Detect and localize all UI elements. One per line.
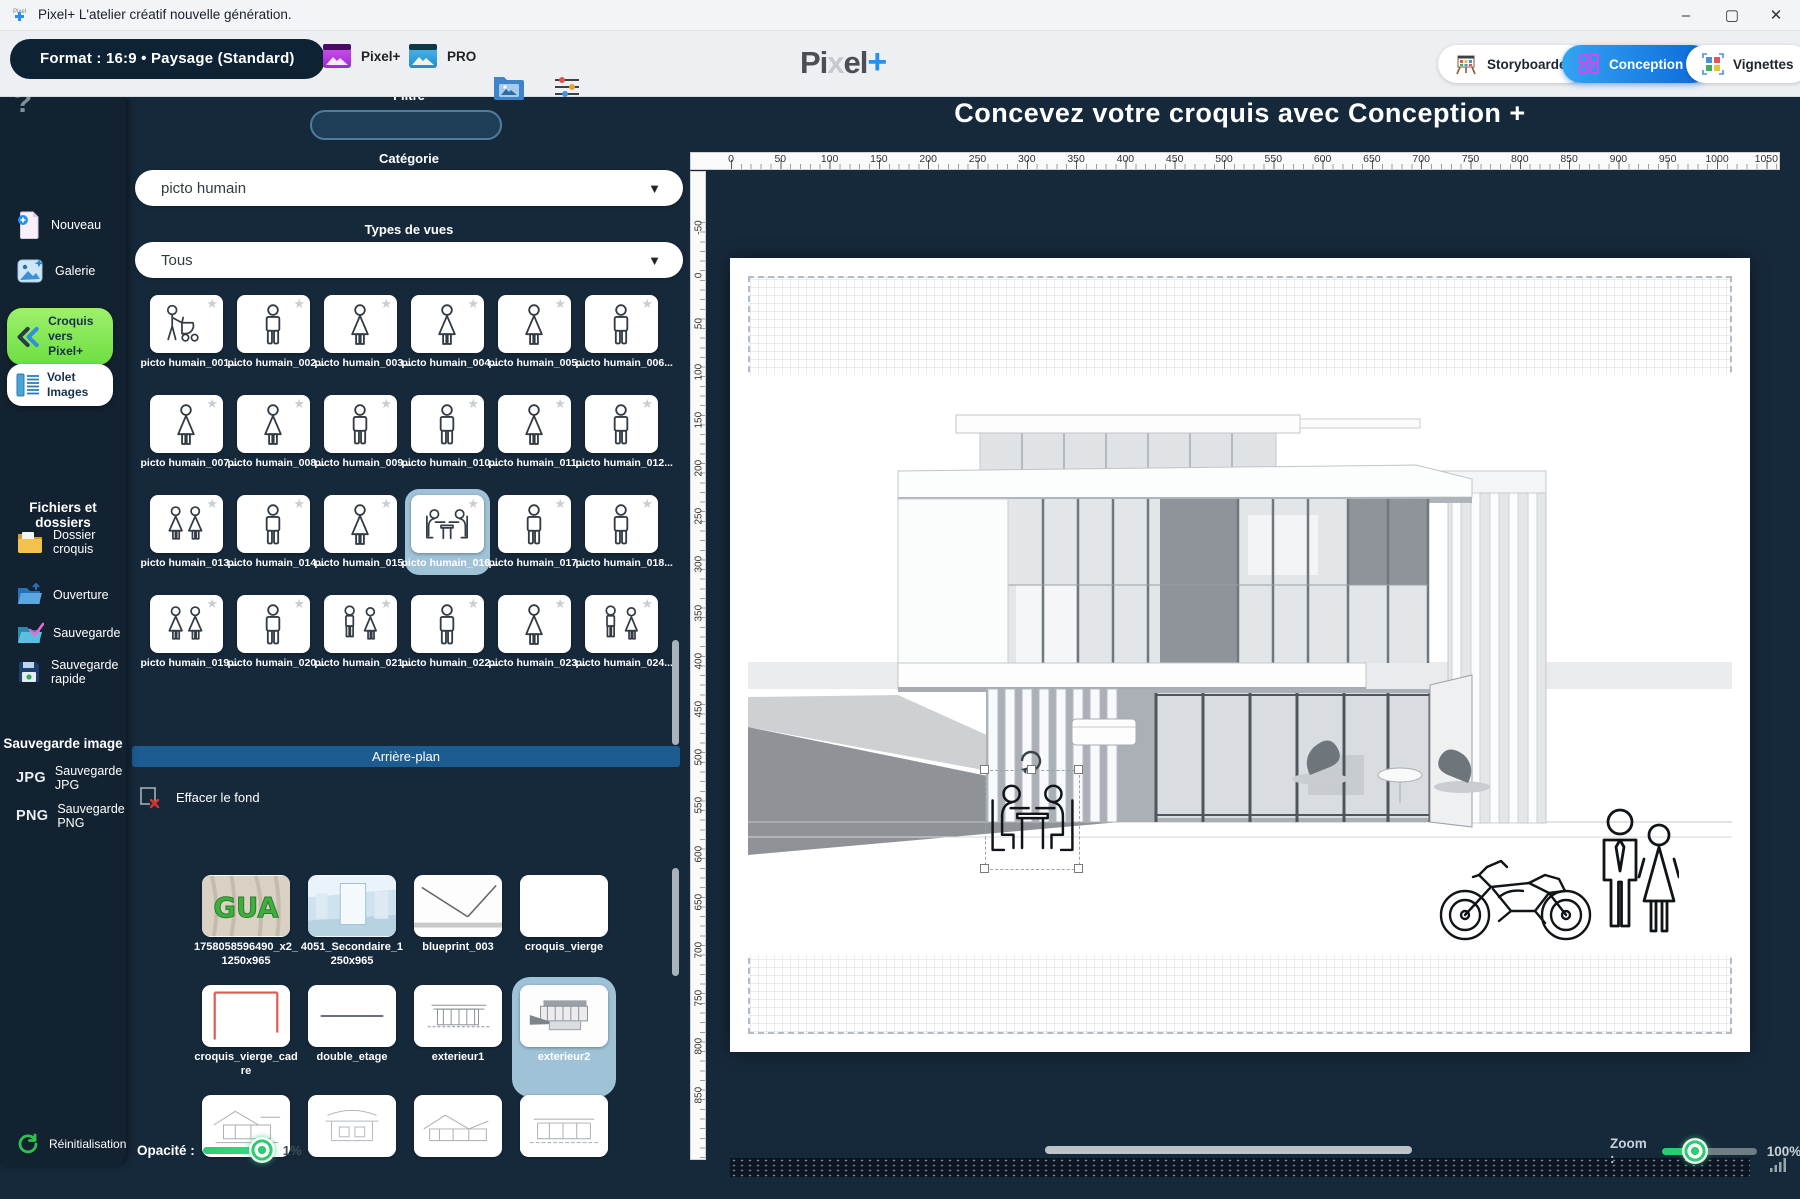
ruler-tick-label: 1050 bbox=[1755, 153, 1778, 165]
picto-tile[interactable]: ★ picto humain_022... bbox=[411, 595, 484, 669]
ruler-tick-label: 250 bbox=[969, 153, 987, 165]
background-thumb-image bbox=[308, 1095, 396, 1157]
picto-tile[interactable]: ★ picto humain_019... bbox=[150, 595, 223, 669]
picto-label: picto humain_024... bbox=[576, 657, 668, 669]
background-tile[interactable]: croquis_vierge_cadre bbox=[202, 985, 290, 1089]
left-sidebar: ? Nouveau Galerie Croquisvers Pixel+ bbox=[0, 92, 126, 1166]
effacer-le-fond-checkbox[interactable]: Effacer le fond bbox=[138, 785, 260, 809]
picto-label: picto humain_016... bbox=[402, 557, 494, 569]
picto-icon bbox=[591, 502, 651, 548]
types-de-vues-dropdown[interactable]: Tous ▼ bbox=[135, 242, 683, 278]
picto-tile[interactable]: ★ picto humain_017... bbox=[498, 495, 571, 569]
volet-images-button[interactable]: VoletImages bbox=[7, 364, 113, 406]
picto-icon bbox=[330, 302, 390, 348]
ruler-tick-label: 100 bbox=[694, 364, 705, 380]
sidebar-item-sauvegarde-rapide[interactable]: Sauvegarde rapide bbox=[16, 658, 122, 686]
picto-icon bbox=[591, 302, 651, 348]
picto-label: picto humain_013... bbox=[141, 557, 233, 569]
zoom-label: Zoom : bbox=[1610, 1136, 1652, 1166]
ruler-tick-label: 850 bbox=[1560, 153, 1578, 165]
picto-label: picto humain_010... bbox=[402, 457, 494, 469]
background-thumb-image bbox=[414, 985, 502, 1047]
double-chevron-left-icon bbox=[15, 325, 42, 349]
background-tile[interactable]: croquis_vierge bbox=[520, 875, 608, 979]
background-thumb-image bbox=[520, 1095, 608, 1157]
picto-tile[interactable]: ★ picto humain_006... bbox=[585, 295, 658, 369]
background-thumb-image bbox=[308, 875, 396, 937]
volet-label: VoletImages bbox=[47, 370, 88, 400]
picto-icon bbox=[591, 402, 651, 448]
ruler-tick-label: 950 bbox=[1659, 153, 1677, 165]
ruler-tick-label: 350 bbox=[1067, 153, 1085, 165]
background-tile[interactable] bbox=[520, 1095, 608, 1199]
picto-label: picto humain_009... bbox=[315, 457, 407, 469]
galerie-label: Galerie bbox=[55, 264, 95, 278]
picto-label: picto humain_012... bbox=[576, 457, 668, 469]
picto-tile[interactable]: ★ picto humain_001... bbox=[150, 295, 223, 369]
picto-icon bbox=[417, 402, 477, 448]
title-bar: Pixel Pixel+ L'atelier créatif nouvelle … bbox=[0, 0, 1800, 31]
ruler-tick-label: 450 bbox=[1166, 153, 1184, 165]
background-label: exterieur2 bbox=[511, 1051, 617, 1065]
picto-icon bbox=[504, 502, 564, 548]
maximize-button[interactable]: ▢ bbox=[1711, 2, 1753, 29]
ruler-tick-label: 100 bbox=[821, 153, 839, 165]
picto-icon bbox=[156, 302, 216, 348]
app-logo: Pixel+ bbox=[800, 43, 886, 82]
picto-icon bbox=[330, 602, 390, 648]
ouverture-label: Ouverture bbox=[53, 588, 109, 602]
erase-background-icon bbox=[138, 785, 162, 809]
ruler-tick-label: 750 bbox=[694, 991, 705, 1007]
gallery-icon bbox=[16, 256, 46, 286]
picto-tile[interactable]: ★ picto humain_012... bbox=[585, 395, 658, 469]
pro-button[interactable]: PRO bbox=[408, 43, 476, 69]
picto-tile[interactable]: ★ picto humain_003... bbox=[324, 295, 397, 369]
ruler-tick-label: 500 bbox=[1215, 153, 1233, 165]
opacity-label: Opacité : bbox=[137, 1143, 195, 1158]
selection-handle[interactable] bbox=[980, 864, 989, 873]
easel-icon bbox=[1454, 52, 1478, 76]
picto-list-scrollbar[interactable] bbox=[672, 640, 679, 745]
picto-label: picto humain_017... bbox=[489, 557, 581, 569]
picto-tile[interactable]: ★ picto humain_018... bbox=[585, 495, 658, 569]
picto-label: picto humain_014... bbox=[228, 557, 320, 569]
canvas-bottom-strip bbox=[730, 1158, 1750, 1177]
floppy-disk-icon bbox=[16, 659, 42, 685]
selection-handle[interactable] bbox=[980, 765, 989, 774]
croquis-vers-pixel-button[interactable]: Croquisvers Pixel+ bbox=[7, 308, 113, 365]
picto-tile[interactable]: ★ picto humain_014... bbox=[237, 495, 310, 569]
categorie-label: Catégorie bbox=[135, 151, 683, 166]
picto-icon bbox=[591, 602, 651, 648]
pixel-plus-button[interactable]: Pixel+ bbox=[322, 43, 400, 69]
ruler-tick-label: 200 bbox=[694, 461, 705, 477]
horizontal-ruler: 0501001502002503003504004505005506006507… bbox=[690, 152, 1780, 170]
png-icon: PNG bbox=[16, 808, 48, 824]
ruler-tick-label: 800 bbox=[1511, 153, 1529, 165]
picto-tile[interactable]: ★ picto humain_008... bbox=[237, 395, 310, 469]
sliders-icon[interactable] bbox=[552, 72, 582, 102]
vertical-ruler: -500501001502002503003504004505005506006… bbox=[690, 171, 706, 1160]
background-thumb-image bbox=[414, 1095, 502, 1157]
ruler-tick-label: 200 bbox=[919, 153, 937, 165]
picto-label: picto humain_003... bbox=[315, 357, 407, 369]
picto-icon bbox=[504, 602, 564, 648]
picto-icon bbox=[330, 402, 390, 448]
folder-save-icon bbox=[16, 620, 44, 646]
opacity-control: Opacité : 1% bbox=[137, 1143, 302, 1158]
categorie-dropdown[interactable]: picto humain ▼ bbox=[135, 170, 683, 206]
picto-label: picto humain_023... bbox=[489, 657, 581, 669]
canvas-horizontal-scrollbar[interactable] bbox=[1045, 1146, 1412, 1154]
zoom-slider[interactable] bbox=[1662, 1148, 1756, 1155]
picto-icon bbox=[417, 302, 477, 348]
picto-icon bbox=[243, 402, 303, 448]
sidebar-item-sauvegarde[interactable]: Sauvegarde bbox=[16, 620, 122, 646]
folder-open-icon bbox=[16, 582, 44, 608]
picto-icon bbox=[330, 502, 390, 548]
picto-label: picto humain_004... bbox=[402, 357, 494, 369]
picto-tile[interactable]: ★ picto humain_024... bbox=[585, 595, 658, 669]
sauvegarde-rapide-label: Sauvegarde rapide bbox=[51, 658, 113, 686]
background-tile[interactable]: exterieur2 bbox=[520, 985, 608, 1089]
picto-tile[interactable]: ★ picto humain_015... bbox=[324, 495, 397, 569]
chevron-down-icon: ▼ bbox=[648, 253, 661, 268]
background-thumb-image bbox=[202, 985, 290, 1047]
placed-picto-couple[interactable] bbox=[1593, 807, 1679, 945]
background-tile[interactable]: 1758058596490_x2_1250x965 bbox=[202, 875, 290, 979]
picto-icon bbox=[156, 602, 216, 648]
sidebar-item-nouveau[interactable]: Nouveau bbox=[16, 210, 122, 240]
sidebar-item-sauvegarde-png[interactable]: PNG Sauvegarde PNG bbox=[16, 802, 122, 830]
sidebar-item-sauvegarde-jpg[interactable]: JPG Sauvegarde JPG bbox=[16, 764, 122, 792]
picto-icon bbox=[156, 402, 216, 448]
background-label: croquis_vierge_cadre bbox=[193, 1051, 299, 1079]
zoom-slider-thumb[interactable] bbox=[1682, 1138, 1708, 1164]
conception-label: Conception + bbox=[1609, 57, 1695, 72]
new-document-icon bbox=[16, 210, 42, 240]
picto-icon bbox=[243, 302, 303, 348]
ruler-tick-label: 700 bbox=[694, 943, 705, 959]
opacity-slider-thumb[interactable] bbox=[249, 1137, 275, 1163]
background-tile[interactable] bbox=[308, 1095, 396, 1199]
reinitialisation-button[interactable]: Réinitialisation bbox=[16, 1132, 122, 1156]
sauvegarde-jpg-label: Sauvegarde JPG bbox=[55, 764, 117, 792]
background-thumb-image bbox=[414, 875, 502, 937]
background-tile[interactable] bbox=[414, 1095, 502, 1199]
window-title: Pixel+ L'atelier créatif nouvelle généra… bbox=[38, 7, 292, 22]
picto-icon bbox=[243, 602, 303, 648]
picto-icon bbox=[504, 302, 564, 348]
picto-tile[interactable]: ★ picto humain_007... bbox=[150, 395, 223, 469]
ruler-tick-label: 300 bbox=[1018, 153, 1036, 165]
background-thumb-image bbox=[520, 875, 608, 937]
picto-label: picto humain_019... bbox=[141, 657, 233, 669]
storyboarder-label: Storyboarder bbox=[1487, 57, 1572, 72]
pixel-plus-label: Pixel+ bbox=[361, 49, 400, 64]
refresh-icon bbox=[16, 1132, 40, 1156]
ruler-tick-label: 450 bbox=[694, 702, 705, 718]
ruler-tick-label: 650 bbox=[1363, 153, 1381, 165]
ruler-tick-label: 700 bbox=[1412, 153, 1430, 165]
picto-icon bbox=[243, 502, 303, 548]
panel-list-icon bbox=[15, 372, 41, 398]
image-save-heading: Sauvegarde image bbox=[0, 736, 126, 751]
ruler-tick-label: 800 bbox=[694, 1039, 705, 1055]
picto-label: picto humain_015... bbox=[315, 557, 407, 569]
format-pill[interactable]: Format : 16:9 • Paysage (Standard) bbox=[10, 39, 325, 79]
picto-label: picto humain_022... bbox=[402, 657, 494, 669]
ruler-tick-label: 400 bbox=[1117, 153, 1135, 165]
ruler-tick-label: 600 bbox=[694, 846, 705, 862]
picto-tile[interactable]: ★ picto humain_021... bbox=[324, 595, 397, 669]
ruler-tick-label: 400 bbox=[694, 653, 705, 669]
picto-tile[interactable]: ★ picto humain_011... bbox=[498, 395, 571, 469]
selection-handle[interactable] bbox=[1074, 765, 1083, 774]
vignettes-button[interactable]: Vignettes bbox=[1686, 45, 1800, 83]
ruler-tick-label: 50 bbox=[774, 153, 786, 165]
ruler-tick-label: 150 bbox=[870, 153, 888, 165]
sidebar-item-galerie[interactable]: Galerie bbox=[16, 256, 122, 286]
picto-label: picto humain_006... bbox=[576, 357, 668, 369]
picto-tile[interactable]: ★ picto humain_005... bbox=[498, 295, 571, 369]
reinitialisation-label: Réinitialisation bbox=[49, 1137, 126, 1151]
ruler-tick-label: 850 bbox=[694, 1087, 705, 1103]
opacity-value: 1% bbox=[283, 1143, 302, 1158]
ruler-tick-label: 750 bbox=[1462, 153, 1480, 165]
ruler-tick-label: 0 bbox=[694, 268, 705, 284]
ruler-tick-label: 350 bbox=[694, 605, 705, 621]
background-label: blueprint_003 bbox=[405, 941, 511, 955]
vignettes-label: Vignettes bbox=[1733, 57, 1794, 72]
ruler-tick-label: -50 bbox=[694, 220, 705, 236]
sauvegarde-png-label: Sauvegarde PNG bbox=[57, 802, 119, 830]
close-button[interactable]: ✕ bbox=[1755, 2, 1797, 29]
resize-grip-icon[interactable] bbox=[1770, 1158, 1786, 1172]
picto-icon bbox=[417, 502, 477, 548]
toolbar: Format : 16:9 • Paysage (Standard) Pixel… bbox=[0, 31, 1800, 97]
picto-label: picto humain_005... bbox=[489, 357, 581, 369]
selection-handle[interactable] bbox=[1027, 765, 1036, 774]
ruler-tick-label: 300 bbox=[694, 557, 705, 573]
files-folders-heading: Fichiers et dossiers bbox=[0, 500, 126, 530]
background-label: double_etage bbox=[299, 1051, 405, 1065]
placed-picto-motorcycle[interactable] bbox=[1433, 845, 1598, 945]
zoom-value: 100% bbox=[1767, 1144, 1800, 1159]
picto-label: picto humain_008... bbox=[228, 457, 320, 469]
background-label: 4051_Secondaire_1250x965 bbox=[299, 941, 405, 969]
ruler-tick-label: 550 bbox=[694, 798, 705, 814]
picto-label: picto humain_002... bbox=[228, 357, 320, 369]
ruler-tick-label: 150 bbox=[694, 412, 705, 428]
vignettes-grid-icon bbox=[1702, 53, 1724, 75]
ruler-tick-label: 1000 bbox=[1705, 153, 1728, 165]
picto-label: picto humain_021... bbox=[315, 657, 407, 669]
sidebar-item-ouverture[interactable]: Ouverture bbox=[16, 582, 122, 608]
jpg-icon: JPG bbox=[16, 770, 46, 786]
conception-squares-icon bbox=[1578, 53, 1600, 75]
picto-label: picto humain_020... bbox=[228, 657, 320, 669]
picto-icon bbox=[504, 402, 564, 448]
background-list-scrollbar[interactable] bbox=[672, 868, 679, 976]
picto-icon bbox=[417, 602, 477, 648]
picto-label: picto humain_018... bbox=[576, 557, 668, 569]
picto-tile[interactable]: ★ picto humain_002... bbox=[237, 295, 310, 369]
ruler-tick-label: 0 bbox=[728, 153, 734, 165]
background-tile[interactable]: double_etage bbox=[308, 985, 396, 1089]
background-label: 1758058596490_x2_1250x965 bbox=[193, 941, 299, 969]
background-tile[interactable]: 4051_Secondaire_1250x965 bbox=[308, 875, 396, 979]
background-thumb-image bbox=[520, 985, 608, 1047]
ruler-tick-label: 600 bbox=[1314, 153, 1332, 165]
picto-tile[interactable]: ★ picto humain_009... bbox=[324, 395, 397, 469]
picto-tile[interactable]: ★ picto humain_016... bbox=[411, 495, 484, 569]
background-thumb-image bbox=[202, 875, 290, 937]
ruler-tick-label: 900 bbox=[1610, 153, 1628, 165]
ruler-tick-label: 250 bbox=[694, 509, 705, 525]
selection-handle[interactable] bbox=[1074, 864, 1083, 873]
background-tile[interactable]: exterieur1 bbox=[414, 985, 502, 1089]
picto-tile[interactable]: ★ picto humain_010... bbox=[411, 395, 484, 469]
background-thumb-image bbox=[308, 985, 396, 1047]
sidebar-item-dossier-croquis[interactable]: Dossier croquis bbox=[16, 528, 122, 556]
image-purple-icon bbox=[322, 43, 352, 69]
dossier-croquis-label: Dossier croquis bbox=[53, 528, 115, 556]
background-label: exterieur1 bbox=[405, 1051, 511, 1065]
picto-tile[interactable]: ★ picto humain_020... bbox=[237, 595, 310, 669]
picto-tile[interactable]: ★ picto humain_004... bbox=[411, 295, 484, 369]
picto-grid: ★ picto humain_001... ★ picto humain_002… bbox=[150, 295, 658, 669]
filtre-input[interactable] bbox=[310, 110, 502, 140]
croquis-label: Croquisvers Pixel+ bbox=[48, 314, 105, 359]
picto-tile[interactable]: ★ picto humain_013... bbox=[150, 495, 223, 569]
minimize-button[interactable]: – bbox=[1665, 2, 1707, 29]
types-value: Tous bbox=[161, 252, 193, 269]
background-label: croquis_vierge bbox=[511, 941, 617, 955]
arriere-plan-bar[interactable]: Arrière-plan bbox=[132, 746, 680, 767]
nouveau-label: Nouveau bbox=[51, 218, 101, 232]
selected-picto-bounds bbox=[985, 770, 1080, 870]
background-tile[interactable]: blueprint_003 bbox=[414, 875, 502, 979]
folder-images-icon[interactable] bbox=[492, 72, 526, 102]
picto-label: picto humain_007... bbox=[141, 457, 233, 469]
image-teal-icon bbox=[408, 43, 438, 69]
categorie-value: picto humain bbox=[161, 180, 246, 197]
ruler-tick-label: 50 bbox=[694, 316, 705, 332]
ruler-tick-label: 650 bbox=[694, 894, 705, 910]
picto-label: picto humain_011... bbox=[489, 457, 581, 469]
folder-yellow-icon bbox=[16, 529, 44, 555]
ruler-tick-label: 550 bbox=[1265, 153, 1283, 165]
opacity-slider[interactable] bbox=[203, 1147, 275, 1154]
canvas-heading: Concevez votre croquis avec Conception + bbox=[730, 98, 1750, 129]
ruler-tick-label: 500 bbox=[694, 750, 705, 766]
app-logo-icon: Pixel bbox=[12, 6, 31, 25]
pro-label: PRO bbox=[447, 49, 476, 64]
types-de-vues-label: Types de vues bbox=[135, 222, 683, 237]
picto-icon bbox=[156, 502, 216, 548]
picto-label: picto humain_001... bbox=[141, 357, 233, 369]
picto-tile[interactable]: ★ picto humain_023... bbox=[498, 595, 571, 669]
chevron-down-icon: ▼ bbox=[648, 181, 661, 196]
sauvegarde-label: Sauvegarde bbox=[53, 626, 120, 640]
effacer-le-fond-label: Effacer le fond bbox=[176, 790, 260, 805]
